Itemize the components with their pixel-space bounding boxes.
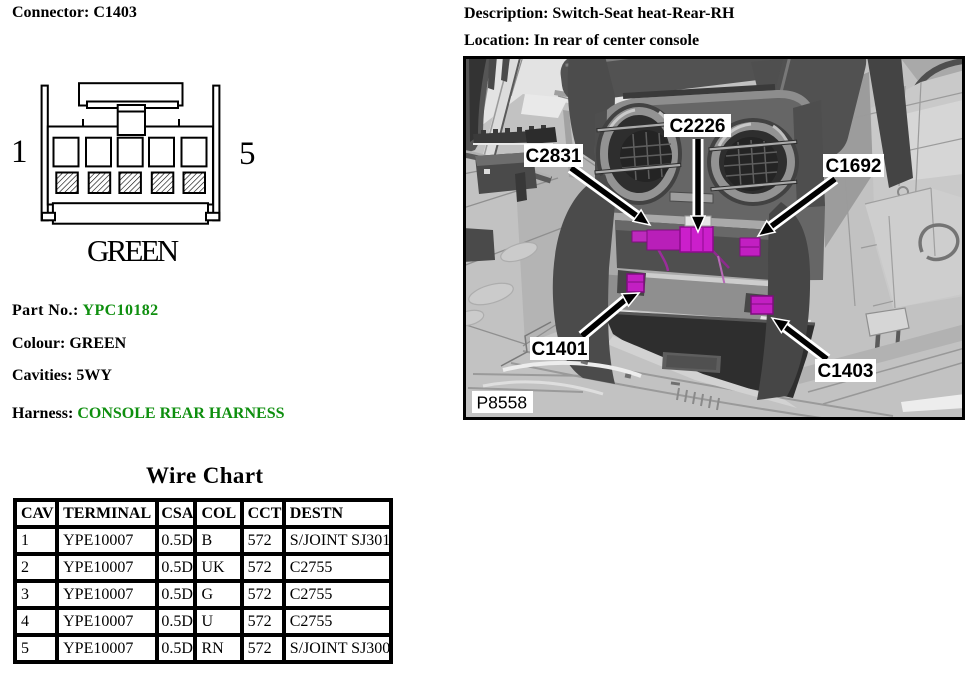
svg-text:5: 5 bbox=[239, 136, 256, 172]
svg-text:C2226: C2226 bbox=[670, 116, 726, 137]
svg-text:P8558: P8558 bbox=[477, 393, 528, 413]
svg-text:C1403: C1403 bbox=[818, 361, 874, 382]
svg-text:C1692: C1692 bbox=[826, 156, 882, 177]
svg-text:C1401: C1401 bbox=[532, 339, 588, 360]
svg-text:C2831: C2831 bbox=[526, 146, 582, 167]
svg-text:1: 1 bbox=[11, 134, 28, 170]
svg-text:GREEN: GREEN bbox=[87, 233, 179, 268]
